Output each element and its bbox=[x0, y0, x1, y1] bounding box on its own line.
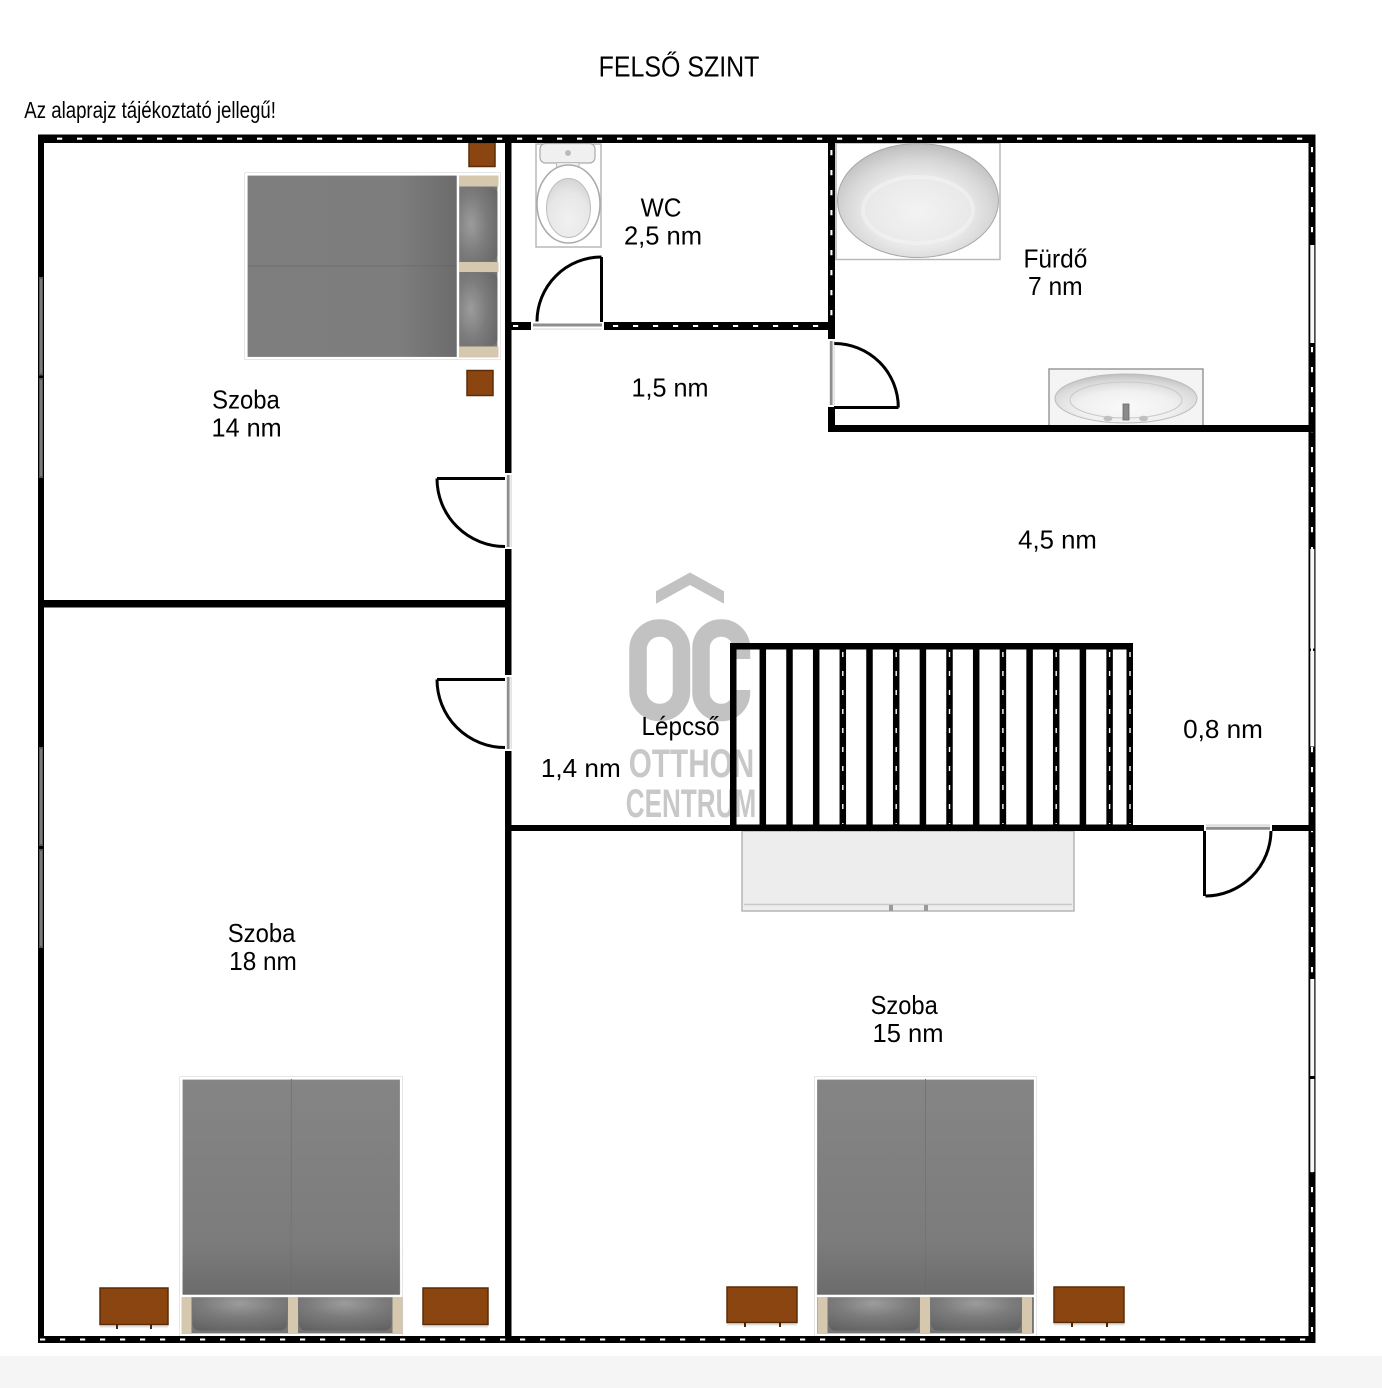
svg-text:Fürdő: Fürdő bbox=[1023, 243, 1087, 273]
svg-text:Az alaprajz tájékoztató jelleg: Az alaprajz tájékoztató jellegű! bbox=[24, 97, 276, 123]
svg-text:4,5 nm: 4,5 nm bbox=[1018, 525, 1097, 555]
svg-text:Szoba: Szoba bbox=[212, 385, 280, 415]
svg-text:18 nm: 18 nm bbox=[229, 946, 297, 976]
svg-text:2,5 nm: 2,5 nm bbox=[624, 221, 702, 251]
svg-text:CENTRUM: CENTRUM bbox=[626, 782, 756, 826]
svg-text:FELSŐ SZINT: FELSŐ SZINT bbox=[599, 52, 760, 84]
svg-text:Szoba: Szoba bbox=[228, 918, 296, 948]
svg-text:15 nm: 15 nm bbox=[873, 1018, 944, 1048]
svg-text:0,8 nm: 0,8 nm bbox=[1183, 714, 1263, 744]
svg-text:WC: WC bbox=[641, 193, 682, 223]
svg-text:1,4 nm: 1,4 nm bbox=[541, 753, 621, 783]
svg-text:Lépcső: Lépcső bbox=[642, 711, 720, 741]
svg-text:7 nm: 7 nm bbox=[1028, 271, 1083, 301]
svg-text:14 nm: 14 nm bbox=[212, 412, 282, 442]
svg-text:1,5 nm: 1,5 nm bbox=[632, 373, 709, 403]
svg-text:Szoba: Szoba bbox=[871, 990, 939, 1020]
